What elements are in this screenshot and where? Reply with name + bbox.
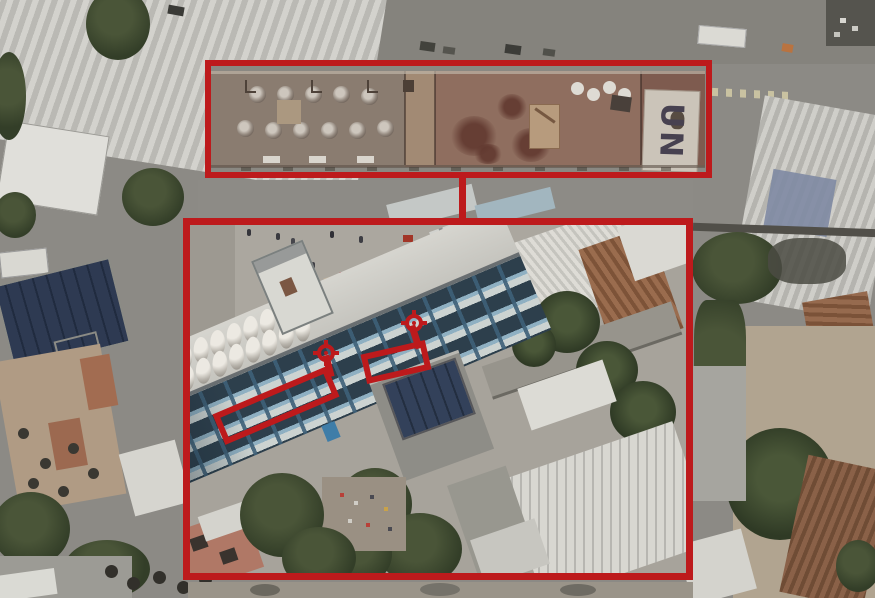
rooftop-water-tank <box>213 351 228 377</box>
roof-bottom-ticks <box>241 167 681 171</box>
palm-shadow <box>768 238 846 284</box>
crosshair-tick <box>401 321 407 325</box>
water-tank <box>333 86 350 103</box>
palm-tree <box>836 540 875 592</box>
tree <box>282 527 356 580</box>
crosshair-tick <box>324 360 328 366</box>
car <box>543 48 556 57</box>
white-tank <box>571 82 584 95</box>
crosshair-tick <box>421 321 427 325</box>
un-roof-marking-patch: UN <box>642 89 701 173</box>
rooftop-items <box>840 18 846 23</box>
rooftop-inset-box: UN <box>205 60 712 178</box>
roof-light-square <box>277 100 301 124</box>
car <box>443 46 456 55</box>
roof-tan-structure <box>529 104 560 149</box>
person <box>359 236 363 243</box>
ground-blob <box>560 584 596 596</box>
roof-mark <box>367 80 378 93</box>
annotated-aerial-image: UN <box>0 0 875 598</box>
tree <box>122 168 184 226</box>
rooftop-tanks-dark <box>18 428 29 439</box>
school-inset-box <box>183 218 693 580</box>
roof-dark-hatch <box>403 80 414 92</box>
roof-marking-text: UN <box>655 102 688 160</box>
water-tank <box>237 120 254 137</box>
person <box>247 229 251 236</box>
roof-white-unit <box>309 156 326 163</box>
crosshair-dot <box>324 351 328 355</box>
gray-roofs-right <box>688 366 746 501</box>
car <box>419 41 435 52</box>
water-tank <box>321 122 338 139</box>
crosshair-dot <box>412 321 416 325</box>
water-tank <box>349 122 366 139</box>
roof-equipment <box>610 95 632 113</box>
person <box>330 231 334 238</box>
roof-mark <box>311 80 322 93</box>
tree <box>0 492 70 566</box>
water-tank <box>377 120 394 137</box>
water-tank <box>265 122 282 139</box>
white-tank <box>603 81 616 94</box>
roof-parapet <box>211 71 705 74</box>
crosshair-tick <box>333 351 339 355</box>
ground-blob <box>250 584 280 596</box>
roof-white-unit <box>357 156 374 163</box>
blue-door <box>321 421 340 442</box>
white-tank <box>587 88 600 101</box>
roof-stain <box>473 144 503 164</box>
rooftop-water-tank <box>262 330 277 356</box>
school-roof-left <box>183 346 189 412</box>
roof-mark <box>245 80 256 93</box>
roof-white-unit <box>263 156 280 163</box>
crosshair-marker-left <box>313 340 339 366</box>
orange-car <box>781 43 793 53</box>
inset-connector-line <box>459 176 466 223</box>
roof-seam <box>434 71 436 165</box>
white-roof-left-lower <box>119 440 192 517</box>
dark-roof-top-right <box>826 0 875 46</box>
crosshair-marker-right <box>401 310 427 336</box>
white-van <box>697 25 746 48</box>
crosshair-tick <box>412 310 416 316</box>
person <box>276 233 280 240</box>
yard-debris <box>340 493 344 497</box>
rooftop-water-tank <box>229 344 244 370</box>
crosshair-tick <box>313 351 319 355</box>
tree <box>0 192 36 238</box>
roof-stain <box>497 94 527 120</box>
water-tank <box>293 122 310 139</box>
crosshair-tick <box>412 330 416 336</box>
crosshair-tick <box>324 340 328 346</box>
rooftop-water-tank <box>196 358 211 384</box>
window <box>219 547 238 565</box>
tower-crate <box>279 277 297 297</box>
rooftop-water-tank <box>246 337 261 363</box>
ground-blob <box>420 583 460 596</box>
tire-stack <box>105 565 118 578</box>
